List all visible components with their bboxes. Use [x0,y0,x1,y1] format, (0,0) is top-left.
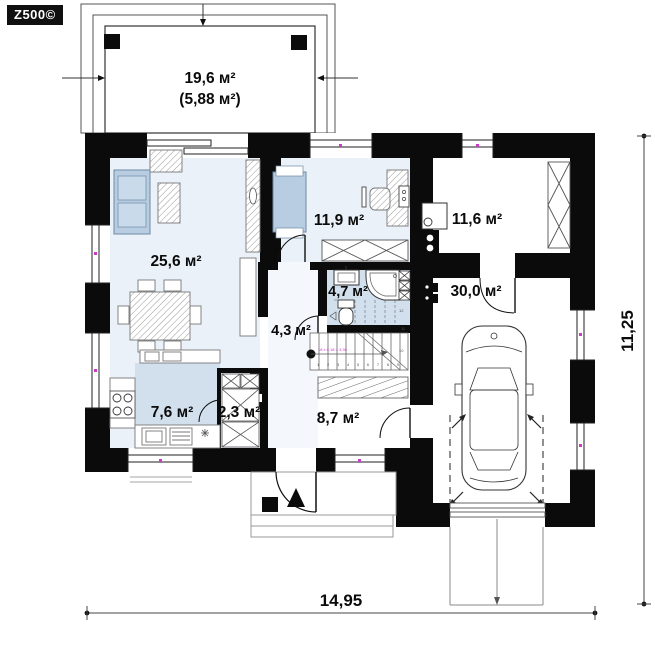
terrace-area-label: 19,6 м² [184,70,235,87]
dining-table [130,292,190,340]
window-right-garage-upper [570,310,595,360]
porch-step [251,515,393,526]
window-left-living [85,225,110,283]
hall-wardrobe [318,377,408,398]
terrace: 19,6 м² (5,88 м²) [62,4,358,133]
window-top-bedroom [310,133,372,158]
coffee-table [158,183,180,223]
garage: 30,0 м² [449,283,545,605]
desk-chair [370,188,390,210]
bedroom-area-label: 11,9 м² [314,212,364,229]
porch-column [262,497,278,512]
pantry-area-label: 2,3 м² [218,404,260,421]
utility-wardrobe [548,162,570,248]
pc-tower-icon [399,186,409,207]
garage-door-panels [450,503,545,517]
corridor: 4,3 м² [271,323,311,339]
bathroom-area-label: 4,7 м² [328,284,368,300]
utility-area-label: 11,6 м² [452,211,502,228]
width-dimension-label: 14,95 [320,591,363,610]
window-bottom-kitchen [128,448,193,482]
window-right-garage-lower [570,423,595,470]
bathroom-shelf [399,271,410,300]
tv-unit [246,160,260,252]
porch-step [251,526,393,537]
sofa [114,170,150,234]
stove-icon [110,378,135,428]
floor-plan-drawing: 19,6 м² (5,88 м²) [0,0,655,659]
corridor-area-label: 4,3 м² [271,323,311,339]
height-dimension-label: 11,25 [618,310,637,352]
window-top-utility [462,133,493,158]
boiler-icon [421,203,447,257]
armchair [150,150,182,172]
garage-door-arc [380,408,410,438]
garage-area-label: 30,0 м² [450,283,501,300]
floor-plan: 19,6 м² (5,88 м²) [0,0,655,659]
tread-number-12: 12 [399,308,404,313]
car-mirror [455,384,462,395]
staircase: 18 x 0,18 = 3,30 1 2 3 4 5 6 7 8 9 10 [307,333,409,370]
entrance [251,472,396,537]
hall-area-label: 8,7 м² [317,410,359,427]
stair-annotation: 18 x 0,18 = 3,30 [318,347,348,352]
bedroom-sofa [273,166,306,238]
monitor-icon [362,187,366,207]
driveway [450,519,543,605]
bedroom-wardrobe [322,240,408,261]
cabinet [240,258,256,336]
living-area-label: 25,6 м² [150,253,201,270]
brand-logo: Z500© [7,5,63,25]
kitchen-top-counter [140,350,220,363]
car [455,326,533,490]
terrace-area-secondary-label: (5,88 м²) [179,91,240,108]
terrace-post [291,35,307,50]
kitchen-area-label: 7,6 м² [151,404,193,421]
hall: 8,7 м² [317,377,410,438]
kitchen-bottom-counter [135,425,220,448]
terrace-post [104,34,120,49]
floor-drain-icon [201,429,209,437]
window-left-kitchen-side [85,333,110,408]
tread-number-10: 10 [399,348,404,353]
car-mirror [526,384,533,395]
dimension-right [637,134,651,607]
